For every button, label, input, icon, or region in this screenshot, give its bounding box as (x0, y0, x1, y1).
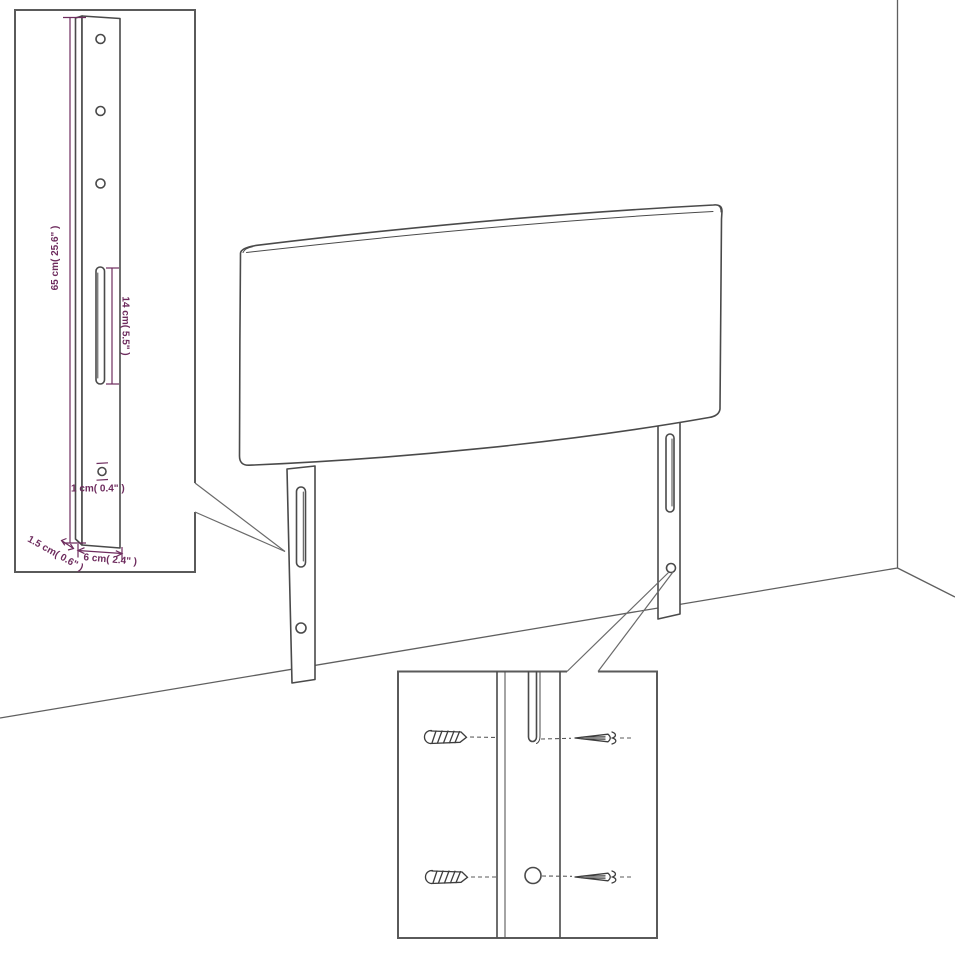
leg-height-label: 65 cm( 25.6" ) (50, 226, 61, 291)
right-leg-body (658, 417, 680, 619)
inset-background (398, 671, 657, 938)
product-dimension-diagram: 65 cm( 25.6" ) 14 cm( 5.5" ) 1 cm( 0.4" … (0, 0, 955, 955)
inset-leg-side-face (76, 16, 83, 545)
callout-line-right (598, 572, 673, 672)
callout-line-upper (195, 483, 285, 552)
callout-left-leg (195, 483, 285, 552)
panel-outline (240, 205, 723, 465)
left-leg-body (287, 466, 315, 683)
headboard-panel (240, 205, 723, 465)
screw-detail-inset (398, 671, 657, 938)
right-mounting-leg (658, 417, 680, 619)
hole-diameter-label: 1 cm( 0.4" ) (71, 484, 125, 495)
floor-line-right (898, 568, 955, 597)
slot-height-label: 14 cm( 5.5" ) (120, 296, 131, 355)
callout-line-left (567, 572, 669, 672)
leg-dimension-inset: 65 cm( 25.6" ) 14 cm( 5.5" ) 1 cm( 0.4" … (15, 10, 195, 574)
diagram-canvas: 65 cm( 25.6" ) 14 cm( 5.5" ) 1 cm( 0.4" … (0, 0, 955, 955)
left-mounting-leg (287, 466, 315, 683)
callout-right-leg-hole (567, 572, 673, 672)
